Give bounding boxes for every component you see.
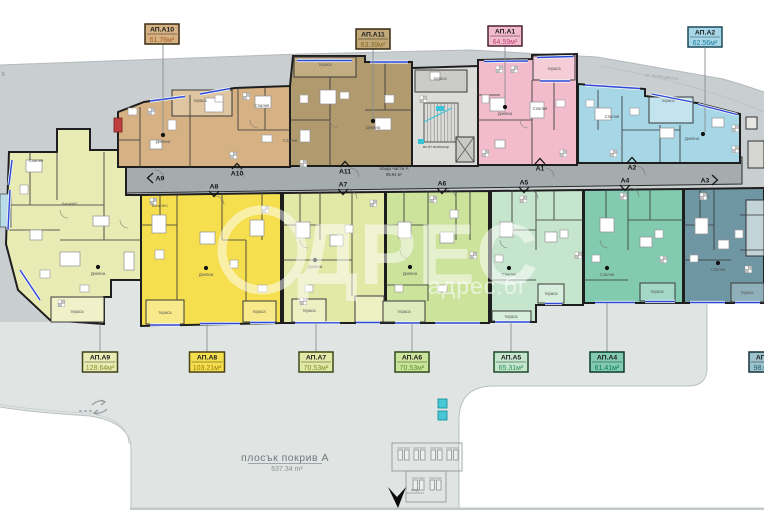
svg-text:61.41м²: 61.41м²	[595, 365, 620, 372]
svg-text:тераса: тераса	[433, 76, 447, 81]
svg-text:Спалня: Спалня	[711, 267, 726, 272]
svg-text:А5: А5	[520, 179, 529, 186]
svg-text:98.06м²: 98.06м²	[754, 365, 764, 372]
svg-text:А6: А6	[438, 180, 447, 187]
svg-text:вход: вход	[411, 488, 418, 492]
svg-text:Спалня: Спалня	[255, 103, 270, 108]
svg-text:637.34 m²: 637.34 m²	[271, 466, 303, 473]
svg-text:Дневна: Дневна	[685, 136, 700, 141]
svg-text:АП.А11: АП.А11	[361, 32, 385, 39]
svg-text:А3: А3	[701, 177, 710, 184]
svg-text:АП.А7: АП.А7	[306, 355, 327, 362]
svg-text:тераса: тераса	[318, 62, 332, 67]
svg-text:Спалня: Спалня	[605, 114, 620, 119]
svg-text:А4: А4	[621, 177, 630, 184]
svg-text:128.64м²: 128.64м²	[86, 365, 115, 372]
svg-text:103.21м²: 103.21м²	[193, 365, 222, 372]
svg-text:96.94 м²: 96.94 м²	[386, 172, 403, 177]
svg-text:Спалня: Спалня	[283, 138, 298, 143]
svg-text:АП.А9: АП.А9	[90, 355, 111, 362]
svg-text:А2: А2	[628, 164, 637, 171]
svg-text:65.31м²: 65.31м²	[499, 365, 524, 372]
svg-text:Дневна: Дневна	[199, 272, 214, 277]
svg-text:АП.А1: АП.А1	[495, 29, 516, 36]
svg-text:общи части А: общи части А	[379, 166, 409, 171]
svg-text:Дневна: Дневна	[366, 125, 381, 130]
svg-text:А9: А9	[156, 175, 165, 182]
svg-text:Дневна: Дневна	[156, 139, 171, 144]
svg-text:тераса: тераса	[504, 314, 518, 319]
svg-text:вх.А+асансьор: вх.А+асансьор	[423, 145, 449, 149]
svg-text:Спалня: Спалня	[600, 272, 615, 277]
svg-text:Спалня: Спалня	[29, 158, 44, 163]
svg-text:Дневна: Дневна	[498, 111, 513, 116]
svg-text:А1: А1	[536, 165, 545, 172]
svg-text:тераса: тераса	[252, 309, 266, 314]
svg-text:тераса: тераса	[158, 310, 172, 315]
svg-text:тераса: тераса	[544, 291, 558, 296]
svg-text:АП.А6: АП.А6	[402, 355, 423, 362]
svg-text:62.56м²: 62.56м²	[693, 40, 718, 47]
svg-text:тераса: тераса	[193, 98, 207, 103]
svg-text:70.53м²: 70.53м²	[400, 365, 425, 372]
svg-text:тераса: тераса	[650, 289, 664, 294]
svg-text:АП.А4: АП.А4	[597, 355, 618, 362]
svg-text:А7: А7	[339, 181, 348, 188]
svg-text:АП.А2: АП.А2	[695, 30, 716, 37]
svg-text:тераса: тераса	[70, 309, 84, 314]
svg-text:А10: А10	[231, 170, 244, 177]
svg-text:тераса: тераса	[740, 290, 754, 295]
svg-text:тераса: тераса	[547, 66, 561, 71]
svg-text:Баня/WC: Баня/WC	[152, 204, 168, 208]
svg-text:адрес.бг: адрес.бг	[428, 273, 527, 299]
svg-text:А11: А11	[339, 168, 351, 175]
svg-text:АП.А3: АП.А3	[756, 355, 764, 362]
svg-text:плосък покрив А: плосък покрив А	[241, 452, 329, 464]
svg-text:А8: А8	[210, 183, 219, 190]
svg-text:АП.А8: АП.А8	[197, 355, 218, 362]
svg-text:63.39м²: 63.39м²	[361, 42, 386, 49]
svg-text:АП.А5: АП.А5	[501, 355, 522, 362]
svg-text:Баня/WC: Баня/WC	[62, 202, 78, 206]
svg-text:Спалня: Спалня	[533, 106, 548, 111]
svg-text:Дневна: Дневна	[91, 271, 106, 276]
svg-text:70.53м²: 70.53м²	[304, 365, 329, 372]
svg-text:тераса: тераса	[302, 308, 316, 313]
svg-text:тераса: тераса	[661, 98, 675, 103]
svg-text:5: 5	[2, 72, 5, 78]
svg-text:АП.А10: АП.А10	[150, 27, 174, 34]
svg-text:64.59м²: 64.59м²	[493, 39, 518, 46]
svg-text:тераса: тераса	[397, 309, 411, 314]
svg-text:61.76м²: 61.76м²	[150, 37, 175, 44]
